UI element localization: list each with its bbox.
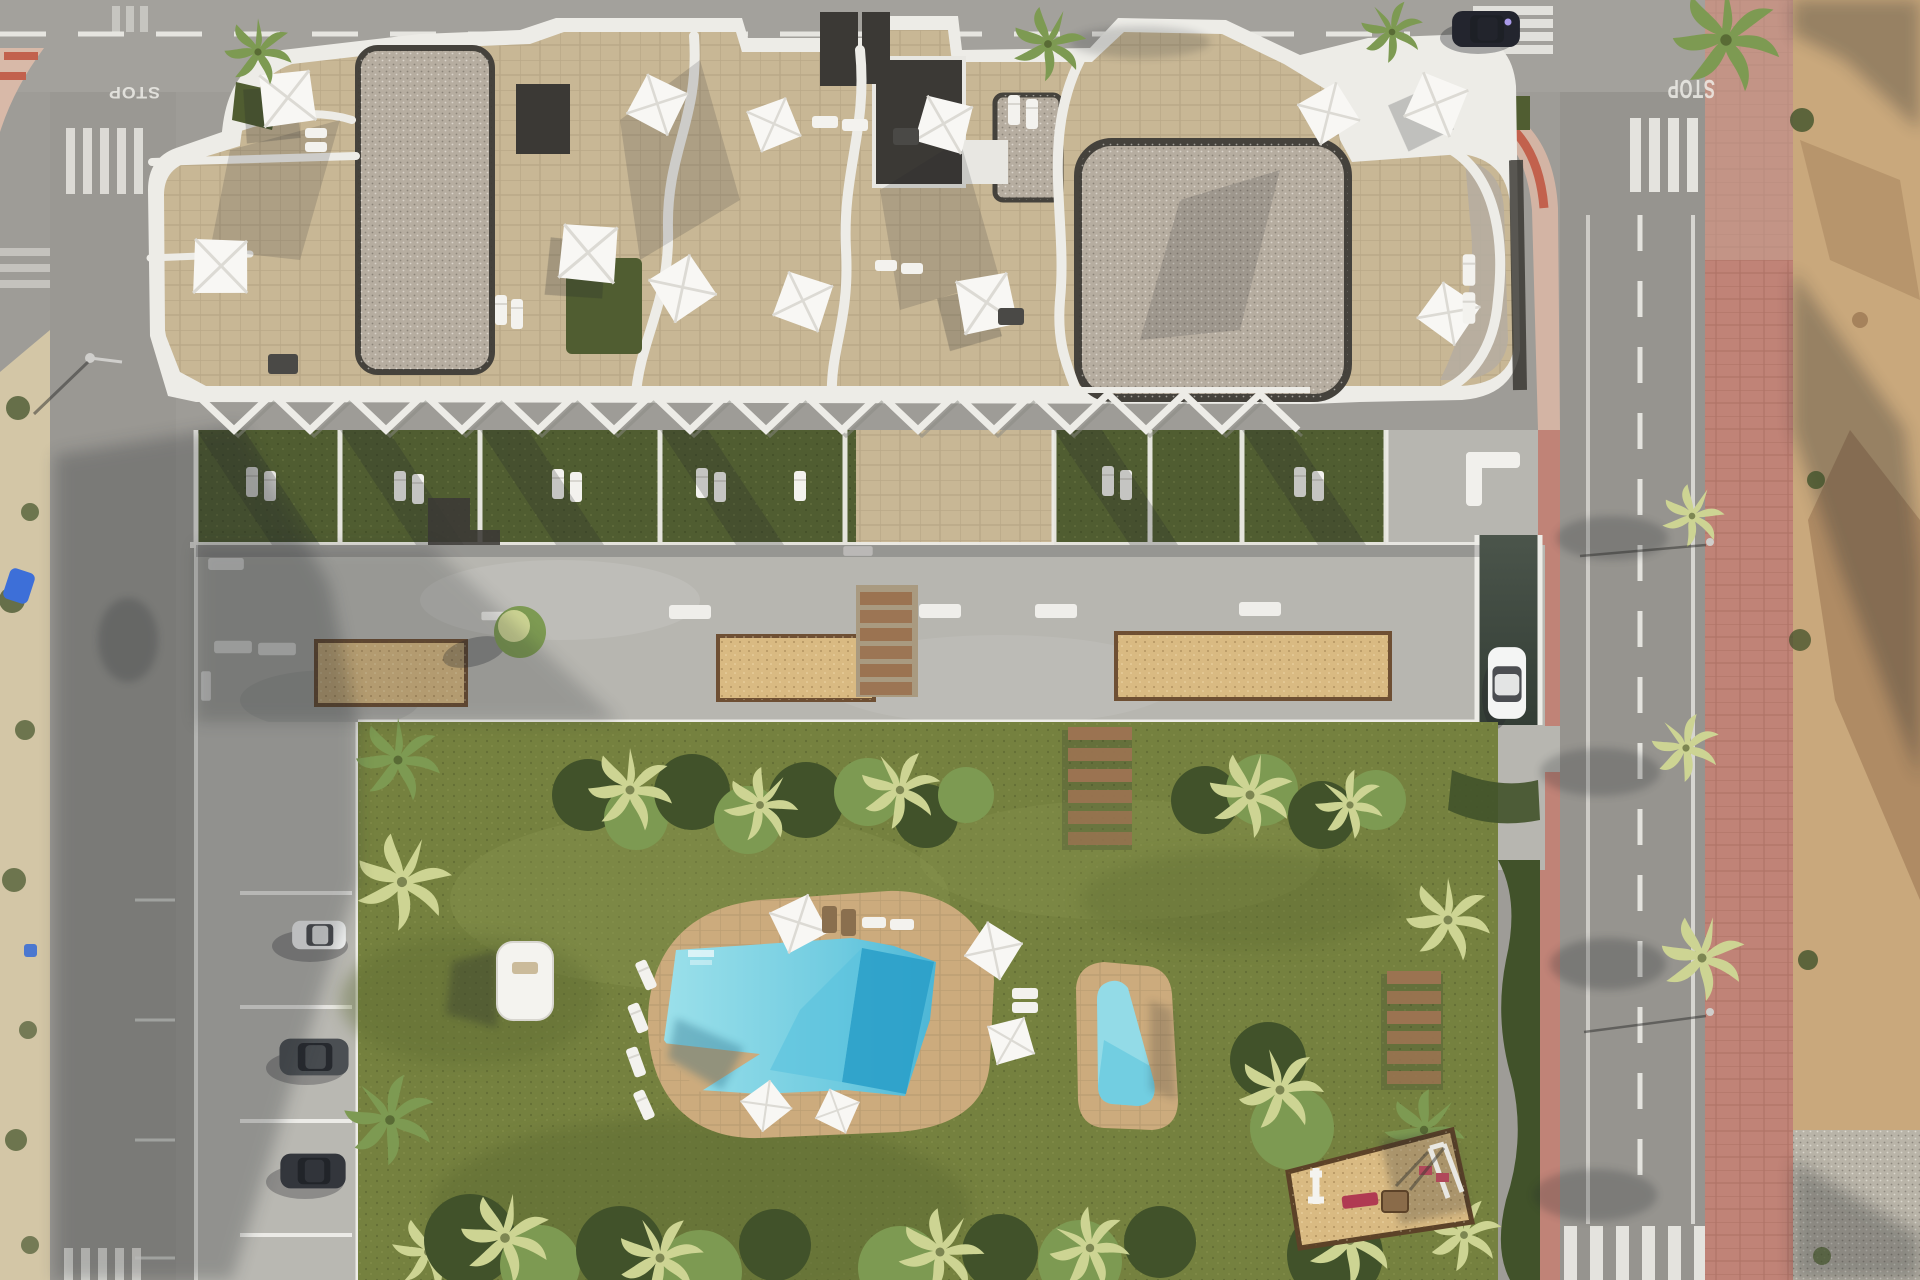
blue-litter bbox=[24, 944, 37, 957]
sand-court-3 bbox=[1116, 633, 1390, 699]
east-facade-edge bbox=[1516, 160, 1520, 390]
stop-marking-right: STOP bbox=[1667, 74, 1715, 104]
scene-canvas: STOP STOP bbox=[0, 0, 1920, 1280]
play-box bbox=[1382, 1191, 1408, 1212]
stop-marking-left: STOP bbox=[108, 83, 160, 102]
lawn-garden bbox=[327, 718, 1540, 1280]
sand-court-2 bbox=[718, 636, 874, 700]
wooden-planks-mid bbox=[1062, 727, 1132, 850]
driveway-ramp bbox=[1477, 535, 1540, 729]
tree-shadow-left-road bbox=[98, 598, 158, 682]
corner-terrace bbox=[1386, 430, 1538, 542]
kids-pool bbox=[1076, 962, 1178, 1130]
parked-car-dark bbox=[280, 1154, 345, 1189]
building bbox=[148, 12, 1520, 436]
aerial-render: STOP STOP bbox=[0, 0, 1920, 1280]
white-car-on-ramp bbox=[1482, 647, 1526, 729]
wooden-steps bbox=[856, 585, 918, 697]
wooden-planks-right bbox=[1381, 971, 1443, 1090]
